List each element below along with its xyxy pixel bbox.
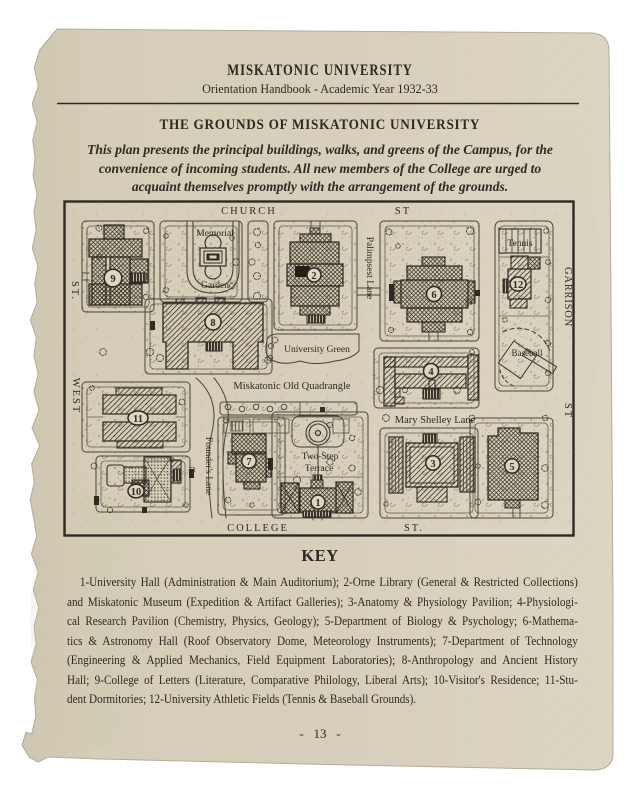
svg-text:Terrace: Terrace bbox=[305, 464, 333, 474]
svg-text:3: 3 bbox=[430, 459, 435, 470]
svg-text:ST.: ST. bbox=[404, 523, 424, 534]
svg-text:4: 4 bbox=[428, 367, 434, 378]
svg-text:ST.: ST. bbox=[69, 281, 80, 301]
svg-text:11: 11 bbox=[133, 414, 143, 425]
svg-text:Baseball: Baseball bbox=[512, 348, 543, 358]
svg-text:10: 10 bbox=[131, 487, 142, 498]
svg-text:CHURCH: CHURCH bbox=[221, 206, 277, 217]
svg-text:WEST: WEST bbox=[70, 378, 81, 415]
svg-text:University Green: University Green bbox=[284, 345, 350, 355]
svg-text:ST: ST bbox=[395, 206, 411, 217]
svg-text:5: 5 bbox=[509, 462, 514, 473]
svg-text:Garden: Garden bbox=[201, 281, 229, 291]
svg-text:1: 1 bbox=[315, 498, 320, 509]
svg-text:GARRISON: GARRISON bbox=[562, 267, 573, 327]
svg-text:ST: ST bbox=[562, 403, 573, 419]
svg-text:Miskatonic Old Quadrangle: Miskatonic Old Quadrangle bbox=[233, 381, 351, 392]
svg-text:COLLEGE: COLLEGE bbox=[227, 523, 289, 534]
svg-text:Founder's Lane: Founder's Lane bbox=[203, 437, 213, 495]
svg-text:2: 2 bbox=[311, 271, 316, 282]
svg-text:6: 6 bbox=[431, 290, 436, 301]
svg-text:8: 8 bbox=[210, 318, 215, 329]
svg-text:Memorial: Memorial bbox=[196, 229, 234, 239]
svg-text:Tennis: Tennis bbox=[507, 239, 532, 249]
svg-text:7: 7 bbox=[246, 457, 251, 468]
svg-text:Palimpsest Lane: Palimpsest Lane bbox=[364, 237, 374, 300]
svg-text:Mary Shelley Lane: Mary Shelley Lane bbox=[395, 415, 476, 426]
svg-text:12: 12 bbox=[513, 280, 524, 291]
svg-text:Two-Step: Two-Step bbox=[302, 452, 339, 462]
svg-text:9: 9 bbox=[110, 274, 115, 285]
